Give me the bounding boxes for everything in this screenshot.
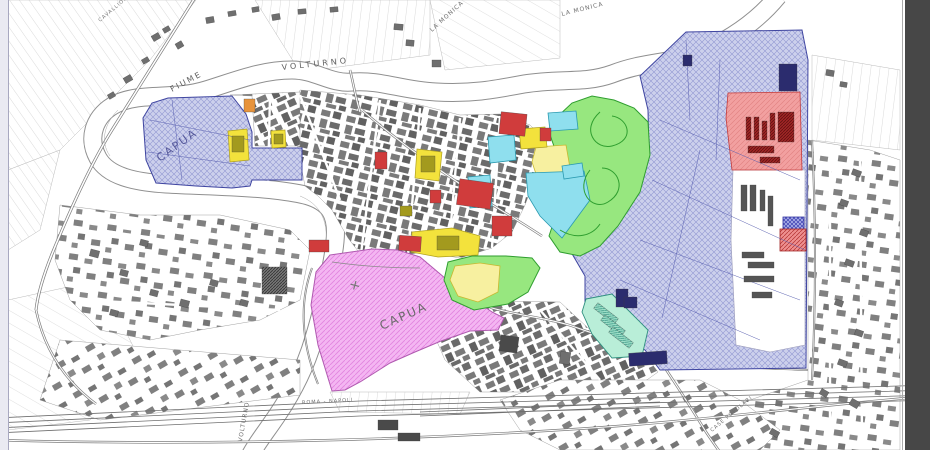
- building-25: [760, 157, 780, 163]
- zone-red-square: [780, 229, 806, 251]
- building-24: [748, 146, 774, 153]
- building-3: [421, 156, 435, 172]
- building-38: [499, 335, 519, 353]
- building-53: [330, 7, 338, 13]
- building-20: [754, 117, 759, 140]
- left-edge-strip: [0, 0, 8, 450]
- building-1: [232, 136, 244, 152]
- building-37: [262, 267, 287, 294]
- building-33: [752, 292, 772, 298]
- field-topright: [812, 55, 900, 150]
- building-55: [406, 40, 414, 47]
- building-31: [748, 262, 774, 268]
- zone-cyan-a: [488, 135, 516, 163]
- building-19: [746, 117, 751, 140]
- building-32: [744, 276, 774, 282]
- orange-building: [244, 99, 255, 112]
- window-right-band: [905, 0, 930, 450]
- building-21: [762, 121, 767, 140]
- building-56: [432, 60, 441, 67]
- building-30: [742, 252, 764, 258]
- building-4: [437, 236, 459, 250]
- building-29: [768, 196, 773, 226]
- building-12: [399, 235, 422, 251]
- building-54: [394, 24, 403, 31]
- building-14: [779, 64, 797, 91]
- zone-cyan-e: [562, 163, 584, 179]
- building-51: [272, 13, 281, 20]
- building-23: [778, 112, 794, 142]
- building-58: [840, 81, 848, 87]
- building-6: [499, 112, 527, 137]
- building-26: [741, 185, 747, 211]
- building-57: [826, 69, 835, 76]
- building-17: [624, 297, 637, 308]
- building-10: [430, 190, 441, 203]
- building-41: [398, 433, 420, 441]
- building-9: [492, 216, 512, 236]
- building-18: [629, 351, 668, 367]
- building-39: [559, 351, 571, 364]
- building-50: [252, 6, 260, 12]
- building-5: [400, 206, 412, 216]
- building-13: [309, 240, 329, 252]
- building-11: [375, 152, 387, 169]
- building-28: [760, 190, 765, 211]
- building-7: [540, 128, 551, 141]
- building-15: [683, 55, 692, 66]
- zone-cyan-b: [548, 111, 578, 131]
- map-canvas: FIUMEVOLTURNOCAPUACAPUA+LA MONICALA MONI…: [0, 0, 930, 450]
- building-40: [378, 420, 398, 430]
- building-52: [298, 9, 306, 15]
- building-2: [274, 134, 283, 144]
- building-22: [770, 113, 775, 140]
- building-27: [750, 185, 756, 211]
- building-8: [456, 179, 493, 209]
- capua-zoning-map-page: FIUMEVOLTURNOCAPUACAPUA+LA MONICALA MONI…: [0, 0, 930, 450]
- building-48: [206, 16, 215, 23]
